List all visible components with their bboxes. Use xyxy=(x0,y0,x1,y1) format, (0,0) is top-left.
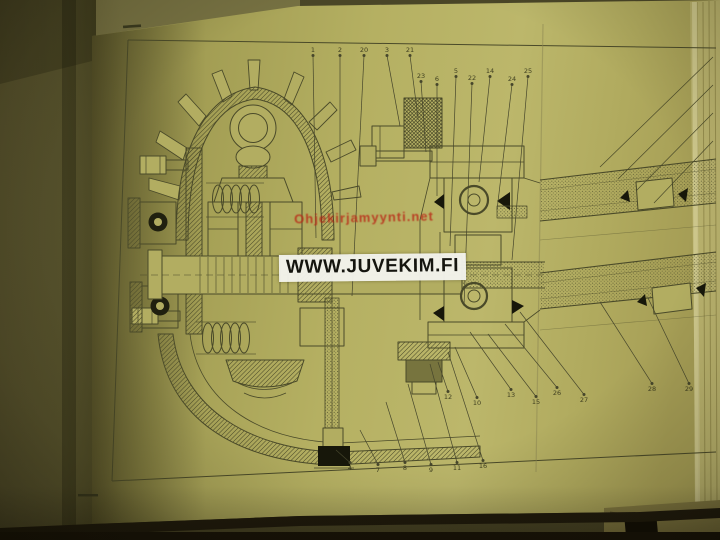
callout-label: 28 xyxy=(648,385,656,393)
callout-label: 13 xyxy=(507,391,515,399)
callout-dot xyxy=(489,75,492,78)
callout-dot xyxy=(527,75,530,78)
callout-label: 1 xyxy=(311,46,315,54)
callout-label: 7 xyxy=(376,466,380,474)
callout-dot xyxy=(436,83,439,86)
callout-dot xyxy=(363,54,366,57)
callout-label: 8 xyxy=(403,464,407,472)
callout-label: 22 xyxy=(468,74,476,82)
callout-dot xyxy=(386,54,389,57)
callout-label: 20 xyxy=(360,46,368,54)
callout-label: 15 xyxy=(532,398,540,406)
photo-of-manual-page: 1220321236522142425121013152627282947891… xyxy=(0,0,720,540)
callout-label: 6 xyxy=(435,75,439,83)
callout-dot xyxy=(420,80,423,83)
callout-label: 12 xyxy=(444,393,452,401)
white-watermark-label: WWW.JUVEKIM.FI xyxy=(279,253,466,282)
callout-dot xyxy=(312,54,315,57)
callout-label: 4 xyxy=(348,464,352,472)
callout-dot xyxy=(455,75,458,78)
callout-dot xyxy=(409,54,412,57)
callout-label: 10 xyxy=(473,399,481,407)
callout-label: 21 xyxy=(406,46,414,54)
callout-label: 24 xyxy=(508,75,516,83)
callout-dot xyxy=(339,54,342,57)
callout-label: 27 xyxy=(580,396,588,404)
callout-label: 3 xyxy=(385,46,389,54)
callout-label: 25 xyxy=(524,67,532,75)
callout-label: 14 xyxy=(486,67,494,75)
callout-label: 5 xyxy=(454,67,458,75)
callout-label: 2 xyxy=(338,46,342,54)
callout-label: 9 xyxy=(429,466,433,474)
callout-dot xyxy=(471,82,474,85)
callout-label: 16 xyxy=(479,462,487,470)
callout-label: 23 xyxy=(417,72,425,80)
drain-plug xyxy=(318,446,350,466)
callout-label: 11 xyxy=(453,464,461,472)
callout-dot xyxy=(511,83,514,86)
callout-label: 26 xyxy=(553,389,561,397)
callout-label: 29 xyxy=(685,385,693,393)
